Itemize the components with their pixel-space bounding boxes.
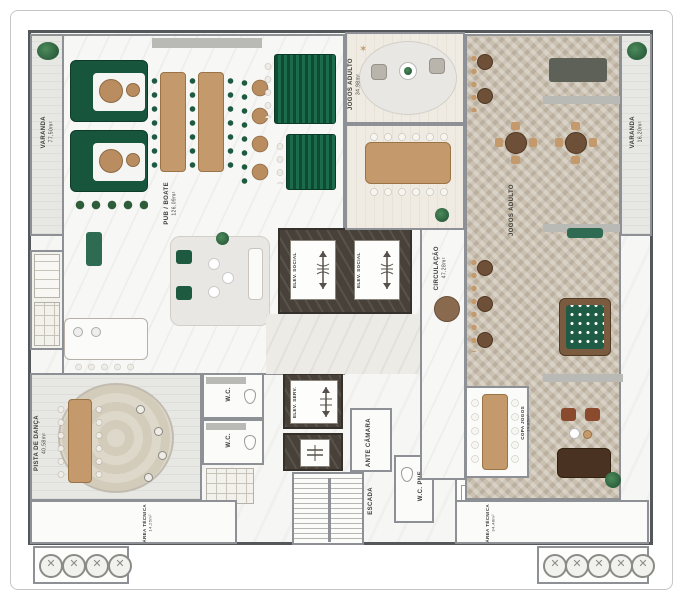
pool-table: [559, 298, 611, 356]
chair: [589, 138, 597, 147]
dining-table: [198, 72, 224, 172]
chair-row: [150, 74, 159, 172]
room-wc: W.C.: [202, 419, 264, 465]
booth-table: [99, 149, 123, 173]
room-label-area-tecnica-esq: ÁREA TÉCNICA 14,25m²: [142, 504, 153, 543]
fan-icon: ✕: [108, 554, 132, 578]
copa-table: [482, 394, 508, 470]
toilet-icon: [401, 467, 413, 482]
room-label-elev-social: ELEV. SOCIAL: [292, 241, 298, 299]
chair-row: [469, 256, 477, 352]
stool-row: [263, 60, 273, 118]
room-pista-danca: PISTA DE DANÇA 40,58m²: [30, 373, 202, 501]
bistro-table: [477, 54, 493, 70]
fan-icon: ✕: [565, 554, 589, 578]
toilet-icon: [244, 389, 256, 404]
room-circulacao: CIRCULAÇÃO 47,28m²: [420, 188, 466, 480]
stair-divider: [328, 478, 331, 542]
stool: [154, 427, 163, 436]
elevator-core: ELEV. SOCIAL ELEV. SOCIAL: [278, 228, 412, 314]
pouf: [208, 286, 220, 298]
bar-counter: [274, 54, 336, 124]
dining-table: [160, 72, 186, 172]
chair: [529, 138, 537, 147]
fan-icon: ✕: [543, 554, 567, 578]
plant-icon: [37, 42, 59, 60]
bistro-table: [477, 296, 493, 312]
toilet-icon: [244, 435, 256, 450]
room-escada: [292, 472, 364, 545]
chair: [511, 156, 520, 164]
chair: [555, 138, 563, 147]
room-jogos-lounge: ✶ JOGOS ADULTO 34,98m²: [345, 32, 465, 124]
booth-seating: [70, 60, 148, 122]
condenser-pad: ✕ ✕ ✕ ✕ ✕: [537, 546, 649, 584]
room-copa-jogos: COPA JOGOS 19,85m²: [465, 386, 529, 478]
room-varanda-left: VARANDA 77,50m²: [30, 34, 64, 236]
booth-table: [126, 153, 140, 167]
bench: [86, 232, 102, 266]
sink-icon: [91, 327, 101, 337]
sideboard: [543, 96, 621, 104]
room-label-elev-social: ELEV. SOCIAL: [356, 241, 362, 299]
dumbwaiter-cab: [300, 439, 330, 467]
room-label-circulacao: CIRCULAÇÃO 47,28m²: [434, 246, 448, 290]
room-dumbwaiter: [283, 433, 343, 471]
pouf: [208, 258, 220, 270]
fan-icon: ✕: [631, 554, 655, 578]
media-console: [549, 58, 607, 82]
side-table: [583, 430, 592, 439]
pouf: [222, 272, 234, 284]
stool: [136, 405, 145, 414]
palm-planter-row: [72, 196, 148, 214]
room-label-varanda-left: VARANDA 77,50m²: [41, 116, 55, 148]
fan-icon: ✕: [609, 554, 633, 578]
bar-cabinets: [30, 250, 64, 350]
room-label-ante-camara: ANTE CÂMARA: [366, 418, 374, 467]
wall-shelf: [152, 38, 262, 48]
floor-plan: { "plan": { "rooms": { "varanda_left": {…: [0, 0, 683, 600]
ottoman: [434, 296, 460, 322]
armchair: [176, 286, 192, 300]
bistro-table: [477, 260, 493, 276]
stool: [158, 451, 167, 460]
chair-row: [240, 76, 249, 186]
room-label-area-tecnica-dir: ÁREA TÉCNICA 34,48m²: [485, 504, 496, 543]
armchair: [429, 58, 445, 74]
stool-row: [72, 362, 134, 372]
bar-counter: [286, 134, 336, 190]
armchair: [585, 408, 600, 421]
dining-table: [365, 142, 451, 184]
room-label-copa-jogos: COPA JOGOS 19,85m²: [520, 406, 531, 440]
plant-icon: [404, 67, 412, 75]
room-label-varanda-right: VARANDA 16,20m²: [630, 116, 644, 148]
room-label-pub: PUB / BOATE 126,09m²: [164, 182, 178, 225]
chair: [511, 122, 520, 130]
bistro-table: [477, 88, 493, 104]
vanity: [206, 377, 246, 384]
chair-row: [367, 186, 451, 196]
lockers: [206, 468, 254, 504]
elevator-icon: [313, 248, 333, 292]
room-ante-camara: ANTE CÂMARA: [350, 408, 392, 472]
booth-table: [126, 83, 140, 97]
vanity: [206, 423, 246, 430]
booth-table: [99, 79, 123, 103]
shelves: [34, 254, 60, 298]
chair-row: [469, 396, 481, 468]
stool-row: [56, 403, 66, 479]
armchair: [371, 64, 387, 80]
fan-icon: ✕: [85, 554, 109, 578]
fan-icon: ✕: [587, 554, 611, 578]
card-table: [505, 132, 527, 154]
room-area-tecnica-dir: ÁREA TÉCNICA 34,48m²: [455, 500, 649, 544]
elevator-hall: [266, 314, 422, 374]
sofa: [557, 448, 611, 478]
card-table: [565, 132, 587, 154]
sink-icon: [73, 327, 83, 337]
room-elev-serv: ELEV. SERV.: [283, 373, 343, 429]
elevator-cab: ELEV. SERV.: [290, 380, 338, 424]
room-label-elev-serv: ELEV. SERV.: [292, 381, 298, 423]
starfish-icon: ✶: [359, 44, 367, 55]
elevator-cab: ELEV. SOCIAL: [354, 240, 400, 300]
chair: [571, 122, 580, 130]
room-label-wc: W.C.: [226, 387, 234, 402]
fan-icon: ✕: [39, 554, 63, 578]
chair: [495, 138, 503, 147]
stool-row: [275, 140, 285, 184]
bench: [567, 228, 603, 238]
fan-icon: ✕: [62, 554, 86, 578]
chair-row: [188, 74, 197, 172]
elevator-icon: [317, 385, 335, 419]
tv-console: [543, 374, 623, 382]
bar-island: [64, 318, 148, 360]
chair-row: [226, 74, 235, 172]
room-label-pista: PISTA DE DANÇA 40,58m²: [34, 415, 48, 471]
room-label-salao-jogos: JOGOS ADULTO: [509, 184, 517, 236]
plant-icon: [605, 472, 621, 488]
room-varanda-right: VARANDA 16,20m²: [620, 34, 652, 236]
stool: [144, 473, 153, 482]
wine-rack: [34, 302, 60, 346]
plant-icon: [435, 208, 449, 222]
sofa: [248, 248, 263, 300]
chair-row: [469, 52, 477, 112]
stool-row: [94, 403, 104, 479]
pool-felt: [566, 305, 604, 349]
room-label-wc: W.C.: [226, 433, 234, 448]
chair-row: [367, 131, 451, 141]
plant-icon: [627, 42, 647, 60]
elevator-icon: [377, 248, 397, 292]
condenser-pad: ✕ ✕ ✕ ✕: [33, 546, 129, 584]
high-table: [68, 399, 92, 483]
room-area-tecnica-esq: ÁREA TÉCNICA 14,25m²: [30, 500, 237, 544]
booth-seating: [70, 130, 148, 192]
room-label-escada: ESCADA: [368, 487, 376, 515]
dumbwaiter-icon: [305, 443, 325, 463]
coffee-table: [569, 428, 580, 439]
armchair: [561, 408, 576, 421]
bistro-table: [477, 332, 493, 348]
dining-room: [345, 124, 465, 230]
chair: [571, 156, 580, 164]
plant-icon: [216, 232, 229, 245]
room-wc: W.C.: [202, 373, 264, 419]
elevator-cab: ELEV. SOCIAL: [290, 240, 336, 300]
armchair: [176, 250, 192, 264]
room-label-jogos-lounge: JOGOS ADULTO 34,98m²: [348, 58, 362, 110]
